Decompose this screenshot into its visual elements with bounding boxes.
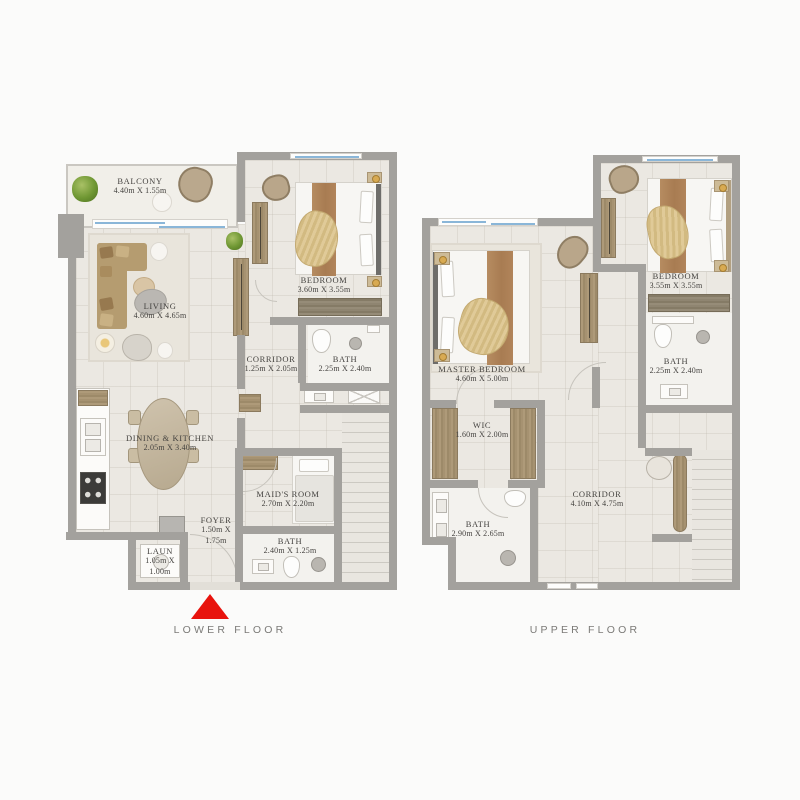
floor-notch-mask: [420, 545, 450, 605]
wall: [389, 152, 397, 590]
room-name: MAID'S ROOM: [246, 489, 330, 499]
wall: [235, 448, 342, 456]
sink-basin: [85, 423, 101, 436]
table-lamp: [719, 184, 727, 192]
wall: [66, 532, 188, 540]
table-lamp: [372, 175, 380, 183]
wall: [334, 448, 342, 590]
wall: [646, 405, 740, 413]
wardrobe-bench: [648, 294, 730, 312]
plant: [226, 232, 243, 250]
room-label-bath2: BATH 2.40m X 1.25m: [254, 536, 326, 557]
bed-double: [647, 178, 732, 272]
room-name: MASTER BEDROOM: [432, 364, 532, 374]
bath-shelf: [367, 325, 380, 333]
room-dims: 1.05m X 1.00m: [136, 556, 184, 577]
wall: [237, 152, 245, 222]
shower-head: [500, 550, 516, 566]
room-dims: 2.25m X 2.40m: [309, 364, 381, 374]
room-label-corridor: CORRIDOR 1.25m X 2.05m: [235, 354, 307, 375]
window-bedroom: [290, 153, 362, 159]
room-dims: 3.60m X 3.55m: [288, 285, 360, 295]
sink-basin: [85, 439, 101, 452]
sink-basin: [314, 393, 326, 401]
room-label-balcony: BALCONY 4.40m X 1.55m: [94, 176, 186, 197]
room-label-wic: WIC 1.60m X 2.00m: [450, 420, 514, 441]
room-name: BATH: [309, 354, 381, 364]
staircase-lower: [342, 413, 389, 582]
room-name: LIVING: [124, 301, 196, 311]
window-glass-line: [647, 159, 713, 161]
kitchen-counter: [76, 388, 110, 530]
lower-floor-caption: LOWER FLOOR: [140, 624, 320, 636]
pillow: [299, 459, 329, 472]
window-corridor: [547, 583, 571, 589]
kitchen-sink: [80, 418, 106, 456]
window-bedroom: [642, 156, 718, 162]
sofa-cushion: [115, 245, 129, 257]
wall: [300, 405, 397, 413]
window-glass-line: [491, 223, 535, 225]
window-glass-line: [442, 221, 486, 223]
room-name: DINING & KITCHEN: [120, 433, 220, 443]
pillow: [440, 317, 455, 354]
room-label-master-bedroom: MASTER BEDROOM 4.60m X 5.00m: [432, 364, 532, 385]
sofa-cushion: [99, 297, 114, 311]
room-name: CORRIDOR: [557, 489, 637, 499]
bed-double: [432, 250, 530, 364]
wardrobe: [233, 258, 249, 336]
window-glass-line: [95, 222, 165, 224]
room-dims: 2.05m X 3.40m: [120, 443, 220, 453]
window-glass-line: [159, 226, 225, 228]
lower-floor-plan: BALCONY 4.40m X 1.55m LIVING 4.60m X 4.6…: [64, 148, 400, 610]
nightstand: [714, 180, 729, 192]
wall: [128, 540, 136, 582]
room-dims: 2.25m X 2.40m: [640, 366, 712, 376]
room-label-bath2: BATH 2.90m X 2.65m: [442, 519, 514, 540]
wall: [300, 383, 397, 391]
table-lamp: [439, 256, 447, 264]
wall: [68, 218, 76, 532]
pillow: [359, 234, 374, 267]
room-label-bedroom: BEDROOM 3.60m X 3.55m: [288, 275, 360, 296]
room-name: WIC: [450, 420, 514, 430]
sofa-cushion: [100, 266, 112, 277]
sink-basin: [258, 563, 269, 571]
wardrobe-handle: [589, 278, 590, 338]
room-label-bath1: BATH 2.25m X 2.40m: [640, 356, 712, 377]
wardrobe-handle: [241, 264, 242, 331]
wall: [530, 488, 538, 582]
window-living: [92, 219, 228, 229]
window-glass-line: [295, 156, 359, 158]
wall: [270, 317, 397, 325]
room-label-bedroom: BEDROOM 3.55m X 3.55m: [640, 271, 712, 292]
wall-column: [58, 214, 84, 258]
pouf: [150, 242, 168, 261]
room-label-laundry: LAUN 1.05m X 1.00m: [136, 546, 184, 577]
wall: [235, 526, 342, 534]
room-dims: 1.25m X 2.05m: [235, 364, 307, 374]
wall: [732, 155, 740, 590]
room-name: BEDROOM: [640, 271, 712, 281]
window-corridor: [576, 583, 598, 589]
sink: [252, 559, 274, 574]
room-dims: 2.40m X 1.25m: [254, 546, 326, 556]
room-name: LAUN: [136, 546, 184, 556]
nightstand: [714, 260, 729, 272]
sofa-cushion: [99, 246, 113, 259]
wardrobe: [432, 408, 458, 479]
shower-head: [311, 557, 326, 572]
room-dims: 2.70m X 2.20m: [246, 499, 330, 509]
room-label-maids-room: MAID'S ROOM 2.70m X 2.20m: [246, 489, 330, 510]
armchair: [122, 334, 152, 361]
staircase-upper: [692, 450, 732, 582]
upper-floor-plan: MASTER BEDROOM 4.60m X 5.00m WIC 1.60m X…: [420, 150, 744, 605]
headboard: [726, 180, 731, 272]
sink: [304, 389, 334, 403]
room-dims: 1.60m X 2.00m: [450, 430, 514, 440]
floorplan-canvas: BALCONY 4.40m X 1.55m LIVING 4.60m X 4.6…: [0, 0, 800, 800]
room-dims: 3.55m X 3.55m: [640, 281, 712, 291]
pillow: [709, 188, 724, 222]
room-name: BATH: [254, 536, 326, 546]
room-name: BATH: [640, 356, 712, 366]
wall: [240, 582, 397, 590]
room-name: BEDROOM: [288, 275, 360, 285]
room-dims: 1.50m X 1.75m: [192, 525, 240, 546]
table-lamp: [439, 353, 447, 361]
vanity-counter: [652, 316, 694, 324]
room-dims: 4.40m X 1.55m: [94, 186, 186, 196]
room-label-foyer: FOYER 1.50m X 1.75m: [192, 515, 240, 546]
wardrobe-handle: [260, 207, 261, 260]
headboard: [376, 184, 381, 275]
wall: [592, 367, 600, 408]
headboard: [433, 252, 438, 364]
wall: [508, 480, 545, 488]
wall: [593, 155, 601, 272]
window-master-bedroom: [438, 218, 538, 226]
entrance-arrow: [191, 594, 229, 619]
wardrobe: [580, 273, 598, 343]
room-label-living: LIVING 4.60m X 4.65m: [124, 301, 196, 322]
room-label-bath: BATH 2.25m X 2.40m: [309, 354, 381, 375]
swivel-chair: [646, 456, 672, 480]
entrance-threshold: [190, 582, 240, 590]
bed-double: [295, 182, 382, 275]
room-name: BALCONY: [94, 176, 186, 186]
room-dims: 4.60m X 4.65m: [124, 311, 196, 321]
wall: [128, 582, 190, 590]
pillow: [440, 261, 455, 298]
nightstand: [367, 172, 382, 183]
room-name: BATH: [442, 519, 514, 529]
room-dims: 4.10m X 4.75m: [557, 499, 637, 509]
sink-basin: [436, 499, 447, 513]
wall: [422, 218, 430, 545]
wardrobe: [601, 198, 616, 258]
stair-banister: [673, 454, 687, 532]
table-lamp: [372, 279, 380, 287]
sofa-cushion: [99, 313, 114, 327]
room-label-dining-kitchen: DINING & KITCHEN 2.05m X 3.40m: [120, 433, 220, 454]
wall: [430, 400, 456, 408]
hallway-bench: [239, 394, 261, 412]
wardrobe-handle: [609, 202, 610, 253]
shower-head: [349, 337, 362, 350]
sink: [660, 384, 688, 399]
wardrobe: [252, 202, 268, 264]
nightstand: [367, 276, 382, 287]
pouf: [157, 342, 173, 359]
room-label-corridor: CORRIDOR 4.10m X 4.75m: [557, 489, 637, 510]
room-dims: 2.90m X 2.65m: [442, 529, 514, 539]
nightstand: [434, 349, 450, 362]
floor-lamp: [95, 333, 115, 353]
room-name: FOYER: [192, 515, 240, 525]
wall: [652, 534, 692, 542]
floor-notch-mask: [56, 534, 128, 594]
shower-tray: [348, 389, 380, 404]
wall: [645, 448, 692, 456]
upper-floor-caption: UPPER FLOOR: [495, 624, 675, 636]
sink-basin: [669, 388, 681, 396]
room-name: CORRIDOR: [235, 354, 307, 364]
table-lamp: [719, 264, 727, 272]
wardrobe: [510, 408, 536, 479]
stove: [80, 472, 106, 504]
kitchen-shelf: [78, 390, 108, 406]
wall: [537, 400, 545, 488]
dining-chair: [186, 410, 199, 425]
wardrobe-bench: [298, 298, 382, 316]
pillow: [359, 191, 374, 224]
wall: [237, 418, 245, 456]
nightstand: [434, 252, 450, 265]
room-dims: 4.60m X 5.00m: [432, 374, 532, 384]
pillow: [709, 229, 724, 263]
wall: [430, 480, 478, 488]
shower-head: [696, 330, 710, 344]
